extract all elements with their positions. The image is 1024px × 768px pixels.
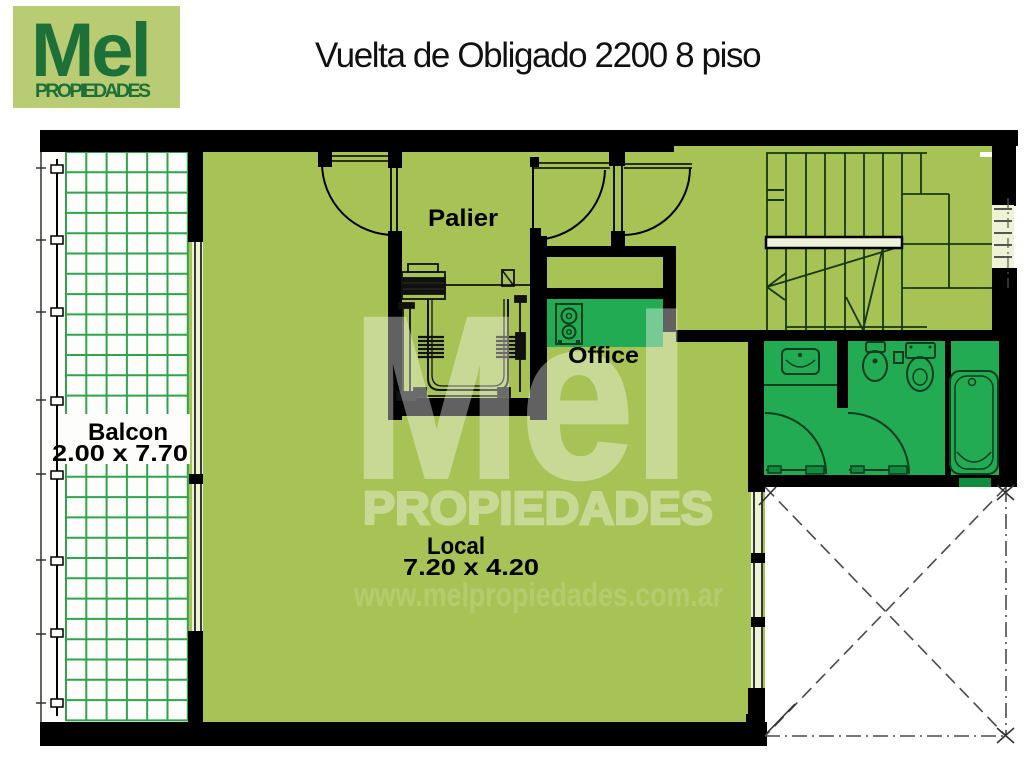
svg-text:www.melpropiedades.com.ar: www.melpropiedades.com.ar [353, 576, 723, 613]
svg-text:Palier: Palier [428, 205, 498, 232]
svg-text:PROPIEDADES: PROPIEDADES [363, 482, 713, 534]
svg-text:2.00 x 7.70: 2.00 x 7.70 [52, 440, 188, 466]
svg-text:7.20 x 4.20: 7.20 x 4.20 [403, 554, 539, 580]
svg-text:Office: Office [568, 342, 639, 368]
